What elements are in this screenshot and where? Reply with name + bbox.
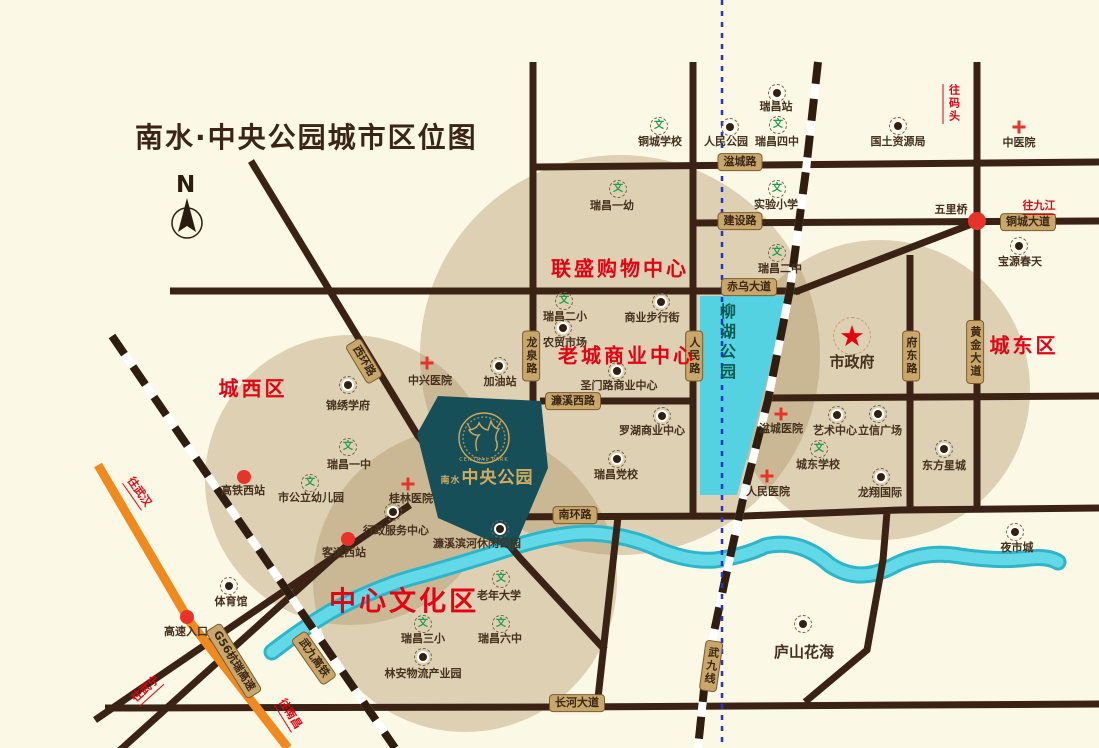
poi-label: 行政服务中心 <box>363 525 429 538</box>
poi-dot-icon <box>608 450 626 468</box>
poi-label: 人民医院 <box>746 486 790 499</box>
road-badge: 长河大道 <box>549 694 605 712</box>
poi-label: 庐山花海 <box>774 644 834 661</box>
school-icon: 文 <box>301 474 319 492</box>
poi-dot-icon <box>490 357 508 375</box>
poi-dot-icon <box>653 407 671 425</box>
poi-label: 瑞昌六中 <box>478 633 522 646</box>
poi-label: 夜市城 <box>1001 542 1034 555</box>
project-logo-title: 南水中央公园 <box>440 463 533 488</box>
school-icon: 文 <box>339 438 357 456</box>
station-dot-icon <box>237 470 251 484</box>
poi-dot-icon <box>828 406 846 424</box>
school-icon: 文 <box>555 292 573 310</box>
direction-label: 往码头 <box>943 84 962 124</box>
government-star-icon: ★ <box>833 317 871 355</box>
poi-dot-icon <box>869 405 887 423</box>
poi-label: 濂溪滨河休闲公园 <box>433 538 521 551</box>
poi-label: 瑞昌二中 <box>758 263 802 276</box>
station-dot-icon <box>341 532 355 546</box>
poi-label: 中兴医院 <box>408 375 452 388</box>
poi-label: 中医院 <box>1003 137 1036 150</box>
poi-label: 立信广场 <box>858 425 902 438</box>
road-badge: 赤乌大道 <box>721 278 777 296</box>
road-badge: 龙泉路 <box>522 331 540 382</box>
hospital-cross-icon <box>402 478 415 491</box>
poi-label: 罗湖商业中心 <box>619 425 685 438</box>
poi-label: 铜城学校 <box>638 136 682 149</box>
poi-label: 瑞昌四中 <box>755 136 799 149</box>
poi-label: 瑞昌三小 <box>401 633 445 646</box>
station-dot-icon <box>180 610 194 624</box>
poi-label: 瑞昌一幼 <box>590 200 634 213</box>
road-badge: 铜城大道 <box>1000 213 1056 231</box>
poi-label: 圣门路商业中心 <box>581 380 658 393</box>
poi-label: 瑞昌一中 <box>327 459 371 472</box>
road-badge: 湓城路 <box>718 153 763 171</box>
poi-dot-icon <box>491 520 509 538</box>
poi-dot-icon <box>220 577 238 595</box>
poi-label: 瑞昌站 <box>760 101 793 114</box>
hospital-cross-icon <box>761 470 774 483</box>
map-title: 南水·中央公园城市区位图 <box>135 116 478 156</box>
poi-label: 艺术中心 <box>813 425 857 438</box>
poi-label: 人民公园 <box>704 136 748 149</box>
road-badge: 黄金大道 <box>966 320 984 384</box>
school-icon: 文 <box>810 440 828 458</box>
poi-dot-icon <box>872 468 890 486</box>
poi-label: 高铁西站 <box>221 485 265 498</box>
poi-label: 城东学校 <box>796 459 840 472</box>
district-label: 联盛购物中心 <box>551 253 689 282</box>
district-label: 城西区 <box>219 373 288 402</box>
poi-label: 东方星城 <box>922 460 966 473</box>
school-icon: 文 <box>768 244 786 262</box>
school-icon: 文 <box>492 570 510 588</box>
poi-dot-icon <box>652 293 670 311</box>
school-icon: 文 <box>609 180 627 198</box>
poi-label: 高速入口 <box>164 626 208 639</box>
station-dot-icon <box>968 212 986 230</box>
road-badge: 府东路 <box>902 331 920 382</box>
hospital-cross-icon <box>421 357 434 370</box>
school-icon: 文 <box>768 180 786 198</box>
poi-label: 体育馆 <box>215 596 248 609</box>
poi-label: 市公立幼儿园 <box>278 492 344 505</box>
poi-label: 锦绣学府 <box>326 400 370 413</box>
road-badge: 建设路 <box>718 212 763 230</box>
compass-icon <box>172 198 202 238</box>
city-location-map: 南水·中央公园城市区位图 N 柳湖公园 CENTRAL PARK 南水中央公园 … <box>0 0 1099 748</box>
project-logo-name: 中央公园 <box>462 468 534 488</box>
district-label: 老城商业中心 <box>558 340 696 369</box>
poi-dot-icon <box>721 118 739 136</box>
hospital-cross-icon <box>775 408 788 421</box>
road-badge: 南环路 <box>553 506 598 524</box>
poi-label: 市政府 <box>829 354 874 371</box>
poi-dot-icon <box>414 648 432 666</box>
poi-label: 林安物流产业园 <box>385 668 462 681</box>
poi-label: 客运西站 <box>322 547 366 560</box>
poi-dot-icon <box>1006 523 1024 541</box>
north-label: N <box>176 172 195 198</box>
district-label: 城东区 <box>990 330 1059 359</box>
district-label: 中心文化区 <box>329 580 479 619</box>
lake-label: 柳湖公园 <box>714 303 738 383</box>
poi-label: 宝源春天 <box>998 256 1042 269</box>
road-badge: 濂溪西路 <box>545 392 601 410</box>
school-icon: 文 <box>650 117 668 135</box>
poi-label: 湓城医院 <box>759 423 803 436</box>
poi-dot-icon <box>889 117 907 135</box>
school-icon: 文 <box>769 116 787 134</box>
poi-label: 国土资源局 <box>871 136 926 149</box>
poi-dot-icon <box>339 376 357 394</box>
school-icon: 文 <box>492 615 510 633</box>
poi-label: 龙翔国际 <box>858 487 902 500</box>
poi-dot-icon <box>794 615 812 633</box>
poi-label: 实验小学 <box>754 199 798 212</box>
poi-label: 五里桥 <box>935 204 968 217</box>
poi-dot-icon <box>554 319 572 337</box>
poi-dot-icon <box>384 503 402 521</box>
poi-dot-icon <box>1010 237 1028 255</box>
hospital-cross-icon <box>1013 121 1026 134</box>
poi-label: 加油站 <box>484 376 517 389</box>
poi-dot-icon <box>935 440 953 458</box>
poi-label: 商业步行街 <box>625 312 680 325</box>
poi-label: 瑞昌党校 <box>594 469 638 482</box>
poi-label: 老年大学 <box>477 590 521 603</box>
direction-label: 往九江 <box>1023 197 1056 215</box>
project-logo-prefix: 南水 <box>440 476 460 486</box>
